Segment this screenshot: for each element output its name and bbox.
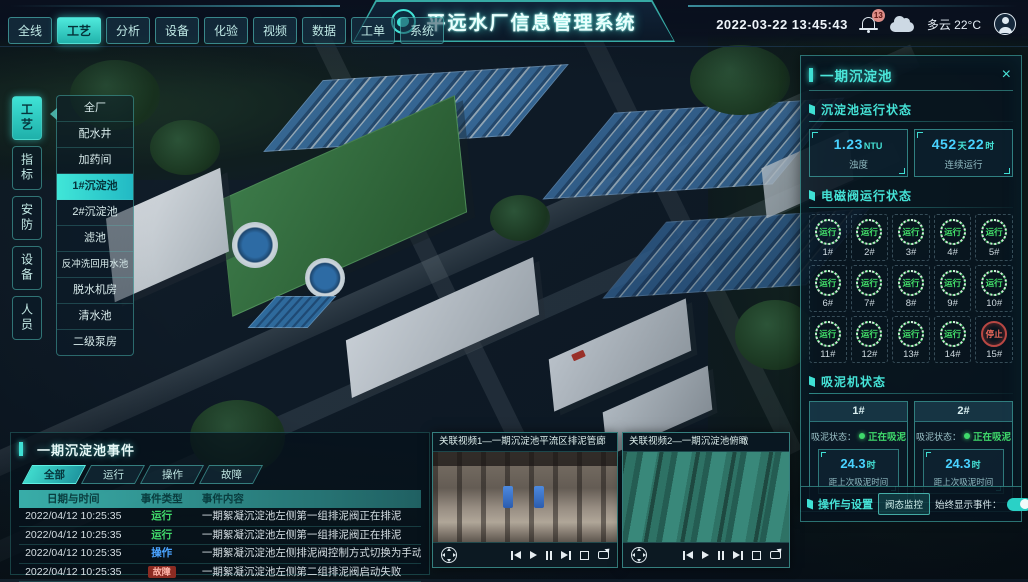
section-bullet-icon	[809, 376, 815, 387]
event-type: 运行	[128, 508, 196, 526]
events-filter-tabs: 全部 运行 操作 故障	[27, 465, 421, 484]
submenu-item-qingshuichi[interactable]: 清水池	[57, 304, 133, 330]
submenu-item-2-chendianchi[interactable]: 2#沉淀池	[57, 200, 133, 226]
valve-ring-icon: 运行	[898, 270, 924, 296]
mud-status-label: 吸泥状态：	[916, 430, 961, 443]
valve-indicator[interactable]: 运行11#	[809, 316, 847, 363]
valve-indicator[interactable]: 运行14#	[934, 316, 972, 363]
section-title-mud-scraper: 吸泥机状态	[821, 373, 886, 390]
table-row[interactable]: 2022/04/12 10:25:35 操作 一期絮凝沉淀池左侧排泥阀控制方式切…	[19, 545, 421, 564]
valve-ring-icon: 运行	[856, 270, 882, 296]
page-title: 平远水厂信息管理系统	[426, 8, 636, 35]
col-datetime: 日期与时间	[19, 490, 128, 508]
events-tab-fault[interactable]: 故障	[199, 465, 263, 484]
section-bullet-icon	[809, 190, 815, 201]
valve-ring-icon: 运行	[898, 321, 924, 347]
close-icon[interactable]: ×	[1000, 67, 1013, 83]
show-events-toggle[interactable]	[1007, 498, 1028, 511]
valve-indicator[interactable]: 运行8#	[892, 265, 930, 312]
valve-ring-icon: 运行	[981, 270, 1007, 296]
title-accent-bar	[809, 68, 813, 82]
valve-ring-icon: 运行	[940, 219, 966, 245]
panel-title: 一期沉淀池	[820, 65, 1000, 85]
mud-status-value: 正在吸泥	[868, 429, 906, 443]
ptz-dpad-icon[interactable]	[631, 547, 647, 563]
valve-ring-icon: 停止	[981, 321, 1007, 347]
valve-grid: 运行1# 运行2# 运行3# 运行4# 运行5# 运行6# 运行7# 运行8# …	[809, 214, 1013, 363]
video-1-feed[interactable]	[433, 452, 617, 542]
switch-view-icon[interactable]	[598, 551, 609, 559]
valve-indicator[interactable]: 运行13#	[892, 316, 930, 363]
event-content: 一期絮凝沉淀池左侧第一组排泥阀正在排泥	[196, 527, 421, 545]
section-bullet-icon	[809, 104, 815, 115]
event-time: 2022/04/12 10:25:35	[19, 508, 128, 526]
submenu-item-1-chendianchi[interactable]: 1#沉淀池	[57, 174, 133, 200]
video-1-scene	[433, 452, 617, 466]
valve-ring-icon: 运行	[940, 321, 966, 347]
events-panel-title: 一期沉淀池事件	[37, 440, 135, 459]
header-accent-line	[688, 5, 1018, 7]
valve-indicator-stopped[interactable]: 停止15#	[975, 316, 1013, 363]
switch-view-icon[interactable]	[770, 551, 781, 559]
operations-settings-panel: 操作与设置 阀态监控 始终显示事件：	[800, 486, 1022, 522]
valve-indicator[interactable]: 运行2#	[851, 214, 889, 261]
uptime-days-unit: 天	[958, 141, 967, 151]
mud-status-label: 吸泥状态：	[811, 430, 856, 443]
nav-tab-quanxian[interactable]: 全线	[8, 17, 52, 44]
status-dot-icon	[859, 433, 865, 439]
weather-cloud-icon	[890, 22, 914, 32]
fullscreen-icon[interactable]	[580, 551, 589, 560]
sidebar-tab-renyuan[interactable]: 人员	[12, 296, 42, 340]
nav-tab-shuju[interactable]: 数据	[302, 17, 346, 44]
notification-bell-icon[interactable]: 13	[861, 16, 877, 32]
nav-tab-shebei[interactable]: 设备	[155, 17, 199, 44]
valve-indicator[interactable]: 运行5#	[975, 214, 1013, 261]
next-icon[interactable]	[561, 551, 572, 560]
video-2-controls	[623, 542, 789, 567]
event-type: 操作	[128, 545, 196, 563]
sidebar-tabs: 工艺 指标 安防 设备 人员	[12, 96, 42, 340]
valve-indicator[interactable]: 运行7#	[851, 265, 889, 312]
event-type: 运行	[128, 527, 196, 545]
uptime-card: 452天22时 连续运行	[914, 129, 1013, 177]
submenu-item-fanchongxi[interactable]: 反冲洗回用水池	[57, 252, 133, 278]
valve-ring-icon: 运行	[815, 321, 841, 347]
video-2-feed[interactable]	[623, 452, 789, 542]
events-tab-run[interactable]: 运行	[81, 465, 145, 484]
ops-title: 操作与设置	[818, 496, 873, 512]
event-time: 2022/04/12 10:25:35	[19, 564, 128, 582]
header-accent-line	[10, 5, 340, 7]
video-panel-2: 关联视频2—一期沉淀池俯瞰	[622, 432, 790, 568]
event-content: 一期絮凝沉淀池左侧第二组排泥阀启动失败	[196, 564, 421, 582]
video-panel-1: 关联视频1—一期沉淀池平流区排泥管廊	[432, 432, 618, 568]
nav-tab-shipin[interactable]: 视频	[253, 17, 297, 44]
previous-icon[interactable]	[511, 551, 522, 560]
sidebar-tab-anfang[interactable]: 安防	[12, 196, 42, 240]
submenu-item-tuoshuijifang[interactable]: 脱水机房	[57, 278, 133, 304]
pause-icon[interactable]	[718, 551, 724, 560]
events-tab-operate[interactable]: 操作	[140, 465, 204, 484]
show-events-label: 始终显示事件：	[935, 497, 1002, 511]
uptime-hours: 22	[968, 136, 985, 152]
nav-tab-xitong[interactable]: 系统	[400, 17, 444, 44]
nav-tab-huayan[interactable]: 化验	[204, 17, 248, 44]
col-content: 事件内容	[196, 490, 421, 508]
mud-scraper-id: 1#	[810, 402, 907, 422]
events-panel: 一期沉淀池事件 全部 运行 操作 故障 日期与时间 事件类型 事件内容 2022…	[10, 432, 430, 575]
event-time: 2022/04/12 10:25:35	[19, 545, 128, 563]
sidebar-tab-gongyi[interactable]: 工艺	[12, 96, 42, 140]
valve-indicator[interactable]: 运行1#	[809, 214, 847, 261]
event-type: 故障	[128, 564, 196, 582]
valve-ring-icon: 运行	[940, 270, 966, 296]
weather-text: 多云 22°C	[927, 16, 981, 33]
sedimentation-detail-panel: 一期沉淀池 × 沉淀池运行状态 1.23NTU 浊度 452天22时 连续运行 …	[800, 55, 1022, 512]
uptime-hours-unit: 时	[985, 141, 994, 151]
user-avatar[interactable]	[994, 13, 1016, 35]
table-row[interactable]: 2022/04/12 10:25:35 运行 一期絮凝沉淀池左侧第一组排泥阀正在…	[19, 508, 421, 527]
events-tab-all[interactable]: 全部	[22, 465, 86, 484]
mud-status-value: 正在吸泥	[973, 429, 1011, 443]
section-title-run-status: 沉淀池运行状态	[821, 101, 912, 118]
valve-indicator[interactable]: 运行9#	[934, 265, 972, 312]
title-accent-bar	[19, 442, 23, 456]
table-row[interactable]: 2022/04/12 10:25:35 故障 一期絮凝沉淀池左侧第二组排泥阀启动…	[19, 564, 421, 582]
nav-tab-gongyi[interactable]: 工艺	[57, 17, 101, 44]
event-content: 一期絮凝沉淀池左侧排泥阀控制方式切换为手动	[196, 545, 421, 563]
ptz-dpad-icon[interactable]	[441, 547, 457, 563]
process-submenu: 全厂 配水井 加药间 1#沉淀池 2#沉淀池 滤池 反冲洗回用水池 脱水机房 清…	[56, 95, 134, 356]
valve-indicator[interactable]: 运行4#	[934, 214, 972, 261]
pump-shape	[503, 486, 513, 508]
submenu-item-erjibengfang[interactable]: 二级泵房	[57, 330, 133, 355]
top-nav: 全线 工艺 分析 设备 化验 视频 数据 工单 系统	[8, 17, 444, 44]
col-type: 事件类型	[128, 490, 196, 508]
uptime-label: 连续运行	[918, 157, 1009, 171]
valve-indicator[interactable]: 运行6#	[809, 265, 847, 312]
uptime-days: 452	[932, 136, 957, 152]
turbidity-label: 浊度	[813, 157, 904, 171]
nav-tab-gongdan[interactable]: 工单	[351, 17, 395, 44]
valve-ring-icon: 运行	[856, 321, 882, 347]
video-1-title: 关联视频1—一期沉淀池平流区排泥管廊	[433, 433, 617, 452]
section-title-valves: 电磁阀运行状态	[821, 187, 912, 204]
event-content: 一期絮凝沉淀池左侧第一组排泥阀正在排泥	[196, 508, 421, 526]
submenu-item-lvchi[interactable]: 滤池	[57, 226, 133, 252]
submenu-item-jiayaojian[interactable]: 加药间	[57, 148, 133, 174]
pause-icon[interactable]	[546, 551, 552, 560]
next-icon[interactable]	[733, 551, 744, 560]
valve-ring-icon: 运行	[898, 219, 924, 245]
turbidity-value: 1.23	[834, 136, 863, 152]
pump-shape	[534, 486, 544, 508]
section-bullet-icon	[807, 499, 813, 510]
valve-monitor-button[interactable]: 阀态监控	[878, 493, 930, 515]
video-1-controls	[433, 542, 617, 567]
valve-ring-icon: 运行	[856, 219, 882, 245]
datetime-display: 2022-03-22 13:45:43	[716, 17, 848, 32]
play-icon[interactable]	[702, 551, 709, 559]
valve-indicator[interactable]: 运行10#	[975, 265, 1013, 312]
sidebar-tab-shebei[interactable]: 设备	[12, 246, 42, 290]
status-dot-icon	[964, 433, 970, 439]
header-right: 2022-03-22 13:45:43 13 多云 22°C	[716, 13, 1016, 35]
mud-time-unit: 时	[972, 460, 981, 470]
valve-indicator[interactable]: 运行3#	[892, 214, 930, 261]
valve-ring-icon: 运行	[815, 219, 841, 245]
mud-scraper-id: 2#	[915, 402, 1012, 422]
nav-tab-fenxi[interactable]: 分析	[106, 17, 150, 44]
mud-time-value: 24.3	[840, 456, 865, 471]
submenu-item-peishuijing[interactable]: 配水井	[57, 122, 133, 148]
play-icon[interactable]	[530, 551, 537, 559]
table-row[interactable]: 2022/04/12 10:25:35 运行 一期絮凝沉淀池左侧第一组排泥阀正在…	[19, 527, 421, 546]
event-time: 2022/04/12 10:25:35	[19, 527, 128, 545]
valve-ring-icon: 运行	[981, 219, 1007, 245]
previous-icon[interactable]	[683, 551, 694, 560]
events-table-header: 日期与时间 事件类型 事件内容	[19, 490, 421, 508]
video-2-title: 关联视频2—一期沉淀池俯瞰	[623, 433, 789, 452]
turbidity-card: 1.23NTU 浊度	[809, 129, 908, 177]
valve-ring-icon: 运行	[815, 270, 841, 296]
sidebar-tab-zhibiao[interactable]: 指标	[12, 146, 42, 190]
fullscreen-icon[interactable]	[752, 551, 761, 560]
alarm-count-badge: 13	[872, 9, 885, 22]
mud-time-unit: 时	[867, 460, 876, 470]
mud-time-value: 24.3	[945, 456, 970, 471]
turbidity-unit: NTU	[864, 141, 883, 151]
valve-indicator[interactable]: 运行12#	[851, 316, 889, 363]
submenu-item-quanchang[interactable]: 全厂	[57, 96, 133, 122]
